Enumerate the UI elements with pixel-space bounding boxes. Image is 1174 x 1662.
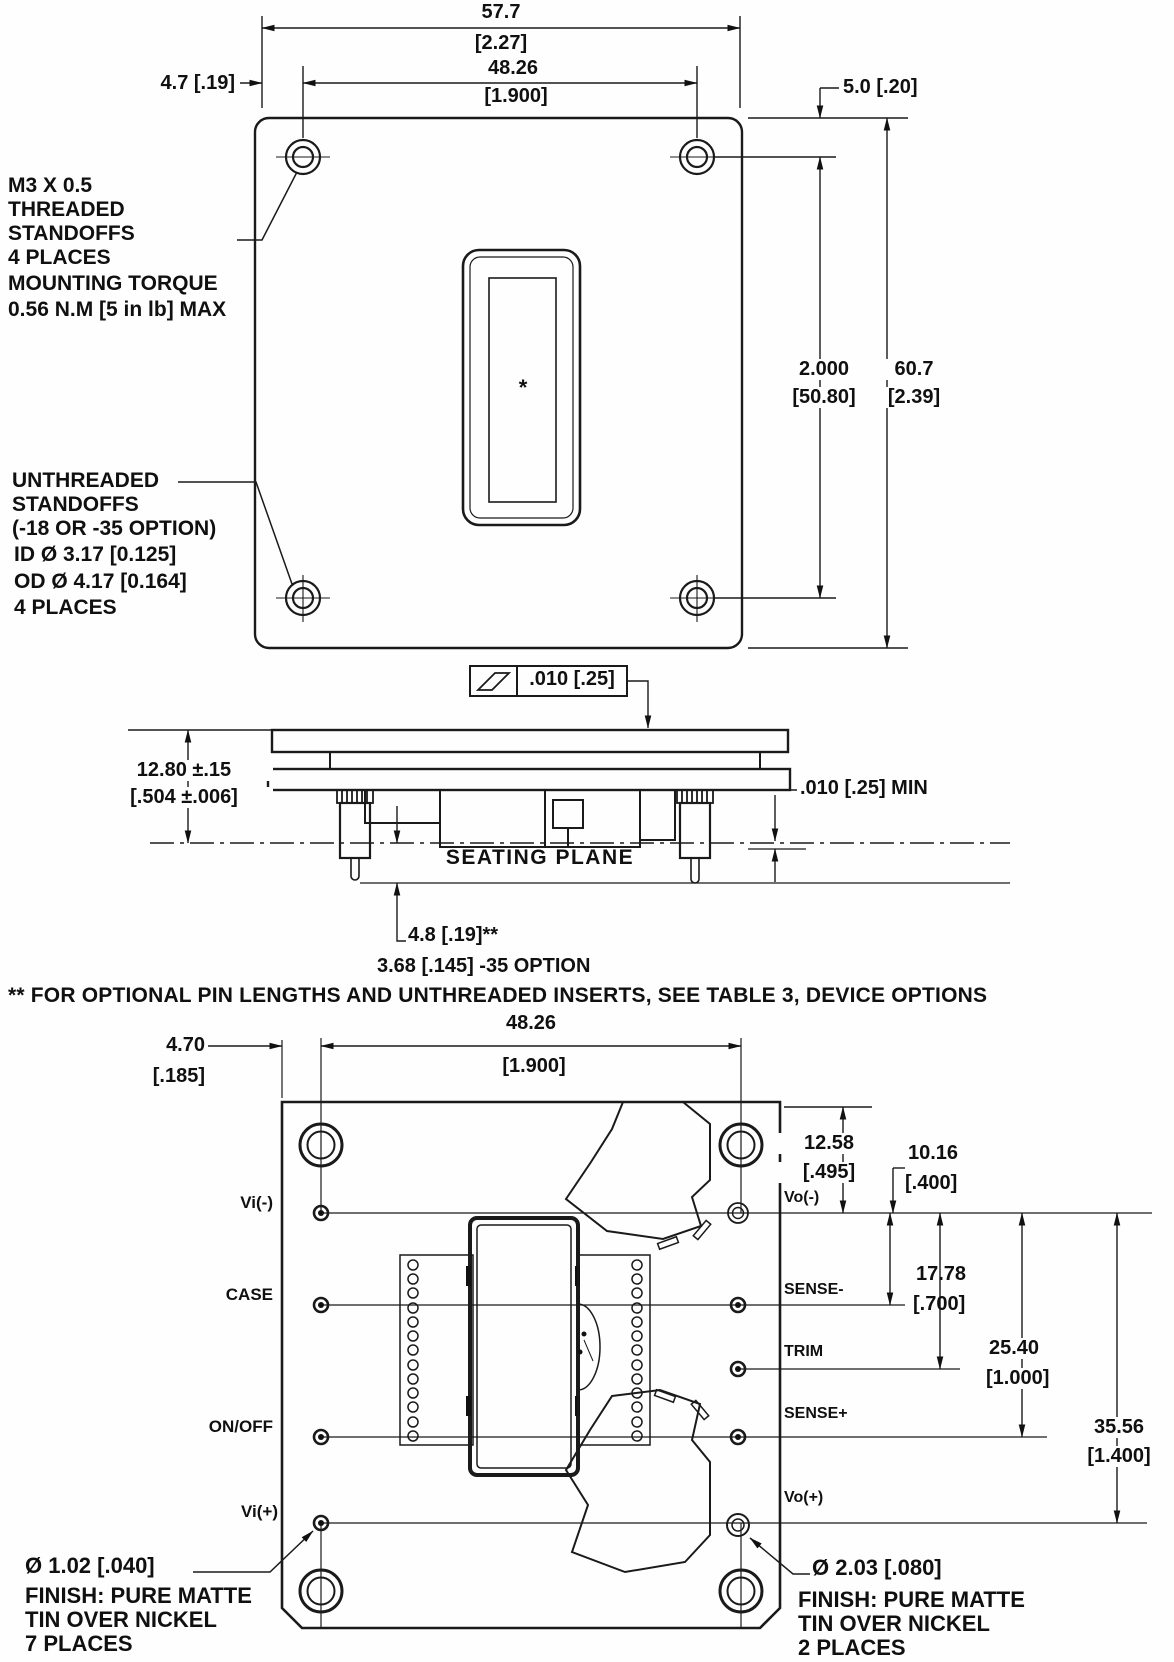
output-pin-callout-line4: 2 PLACES bbox=[798, 1636, 906, 1659]
underside-components bbox=[365, 790, 675, 847]
label-plate-mark: * bbox=[508, 376, 538, 399]
right-pin bbox=[691, 858, 699, 883]
dim-3556-mm: 35.56 bbox=[1068, 1417, 1170, 1438]
unthreaded-note-line1: UNTHREADED bbox=[12, 470, 159, 492]
pin-label-vo-neg: Vo(-) bbox=[784, 1190, 819, 1207]
output-pin-callout-line3: TIN OVER NICKEL bbox=[798, 1612, 990, 1635]
dim-1778-in: [.700] bbox=[913, 1294, 965, 1315]
dim-1016-mm: 10.16 bbox=[908, 1143, 958, 1164]
dim-1016-in: [.400] bbox=[905, 1173, 957, 1194]
package-outline-top bbox=[255, 118, 742, 648]
pin-label-sense-pos: SENSE+ bbox=[784, 1406, 848, 1423]
footnote: ** FOR OPTIONAL PIN LENGTHS AND UNTHREAD… bbox=[8, 985, 987, 1007]
dim-clearance-min: .010 [.25] MIN bbox=[800, 778, 928, 799]
dim-b-pitch-in: [1.900] bbox=[484, 1056, 584, 1077]
dim-1778-mm: 17.78 bbox=[916, 1264, 966, 1285]
left-pin bbox=[351, 858, 359, 880]
input-pin-callout-line4: 7 PLACES bbox=[25, 1632, 133, 1655]
dim-3556-in: [1.400] bbox=[1068, 1446, 1170, 1467]
dim-b-edge-mm: 4.70 bbox=[105, 1035, 205, 1056]
top-winding-shape bbox=[566, 1102, 711, 1249]
dim-hole-pitch-mm: 48.26 bbox=[463, 58, 563, 79]
dim-pin-length: 4.8 [.19]** bbox=[408, 925, 498, 946]
left-standoff bbox=[337, 790, 373, 880]
unthreaded-note-line6: 4 PLACES bbox=[14, 597, 117, 619]
output-pin-callout-line2: FINISH: PURE MATTE bbox=[798, 1588, 1025, 1611]
input-pins bbox=[314, 1206, 328, 1530]
seating-plane-label: SEATING PLANE bbox=[438, 847, 642, 869]
output-pin-callout-line1: Ø 2.03 [.080] bbox=[812, 1556, 942, 1579]
dim-overall-width-mm: 57.7 bbox=[451, 2, 551, 23]
input-pin-callout-line3: TIN OVER NICKEL bbox=[25, 1608, 217, 1631]
dim-overall-height-in: [2.39] bbox=[863, 387, 965, 408]
engineering-drawing: 57.7 [2.27] 48.26 [1.900] 4.7 [.19] 5.0 … bbox=[0, 0, 1174, 1662]
pin-label-on-off: ON/OFF bbox=[158, 1418, 273, 1436]
unthreaded-note-line2: STANDOFFS bbox=[12, 494, 139, 516]
dim-vertical-pitch-in: 2.000 bbox=[773, 359, 875, 380]
dim-hole-pitch-in: [1.900] bbox=[466, 86, 566, 107]
dim-vertical-pitch-mm: [50.80] bbox=[773, 387, 875, 408]
standoff-centerlines bbox=[276, 157, 724, 622]
dim-1258-in: [.495] bbox=[778, 1162, 880, 1183]
unthreaded-note-line3: (-18 OR -35 OPTION) bbox=[12, 518, 216, 540]
dim-overall-height-mm: 60.7 bbox=[863, 359, 965, 380]
pin-label-trim: TRIM bbox=[784, 1344, 823, 1361]
pin-label-vi-neg: Vi(-) bbox=[158, 1194, 273, 1212]
pin-label-vi-pos: Vi(+) bbox=[163, 1503, 278, 1521]
bottom-view-centerlines bbox=[282, 1038, 741, 1628]
mounting-torque-line1: MOUNTING TORQUE bbox=[8, 273, 218, 295]
dim-2540-in: [1.000] bbox=[983, 1368, 1052, 1389]
top-view-dimensions bbox=[240, 16, 908, 648]
mounting-torque-line2: 0.56 N.M [5 in lb] MAX bbox=[8, 299, 226, 321]
input-pin-callout-leader bbox=[193, 1531, 313, 1572]
threaded-standoff-holes bbox=[286, 140, 714, 615]
pin-label-vo-pos: Vo(+) bbox=[784, 1490, 823, 1507]
flatness-tolerance: .010 [.25] bbox=[519, 669, 625, 690]
dim-top-offset: 5.0 [.20] bbox=[843, 77, 917, 98]
dim-pin-length-option: 3.68 [.145] -35 OPTION bbox=[377, 956, 590, 977]
header-flange bbox=[268, 769, 790, 790]
bottom-view-linework bbox=[193, 1038, 1152, 1628]
drawing-linework bbox=[0, 0, 1174, 1662]
unthreaded-note-line5: OD Ø 4.17 [0.164] bbox=[14, 571, 187, 593]
output-sense-pins bbox=[731, 1298, 745, 1444]
dim-1258-mm: 12.58 bbox=[778, 1133, 880, 1154]
flatness-symbol-icon bbox=[478, 673, 509, 690]
left-pad-strip bbox=[400, 1255, 473, 1445]
cover-plate bbox=[272, 730, 788, 752]
threaded-note-line2: THREADED bbox=[8, 199, 125, 221]
unthreaded-note-line4: ID Ø 3.17 [0.125] bbox=[14, 544, 176, 566]
threaded-note-line3: STANDOFFS bbox=[8, 223, 135, 245]
input-pin-callout-line1: Ø 1.02 [.040] bbox=[25, 1554, 155, 1577]
dim-module-height-mm: 12.80 ±.15 bbox=[95, 760, 273, 781]
threaded-note-line1: M3 X 0.5 bbox=[8, 175, 92, 197]
top-view-linework bbox=[178, 16, 908, 648]
right-standoff bbox=[677, 790, 713, 883]
dim-overall-width-in: [2.27] bbox=[451, 33, 551, 54]
threaded-note-line4: 4 PLACES bbox=[8, 247, 111, 269]
threaded-note-leader bbox=[237, 172, 297, 240]
dim-edge-offset: 4.7 [.19] bbox=[120, 73, 235, 94]
dim-2540-mm: 25.40 bbox=[986, 1338, 1042, 1359]
dim-b-pitch-mm: 48.26 bbox=[481, 1013, 581, 1034]
pin-label-case: CASE bbox=[158, 1286, 273, 1304]
package-outline-bottom bbox=[282, 1102, 780, 1628]
core-arc bbox=[578, 1304, 600, 1390]
dim-b-edge-in: [.185] bbox=[95, 1066, 205, 1087]
pin-label-sense-neg: SENSE- bbox=[784, 1282, 844, 1299]
dim-module-height-in: [.504 ±.006] bbox=[95, 787, 273, 808]
input-pin-callout-line2: FINISH: PURE MATTE bbox=[25, 1584, 252, 1607]
body-block bbox=[330, 752, 760, 769]
